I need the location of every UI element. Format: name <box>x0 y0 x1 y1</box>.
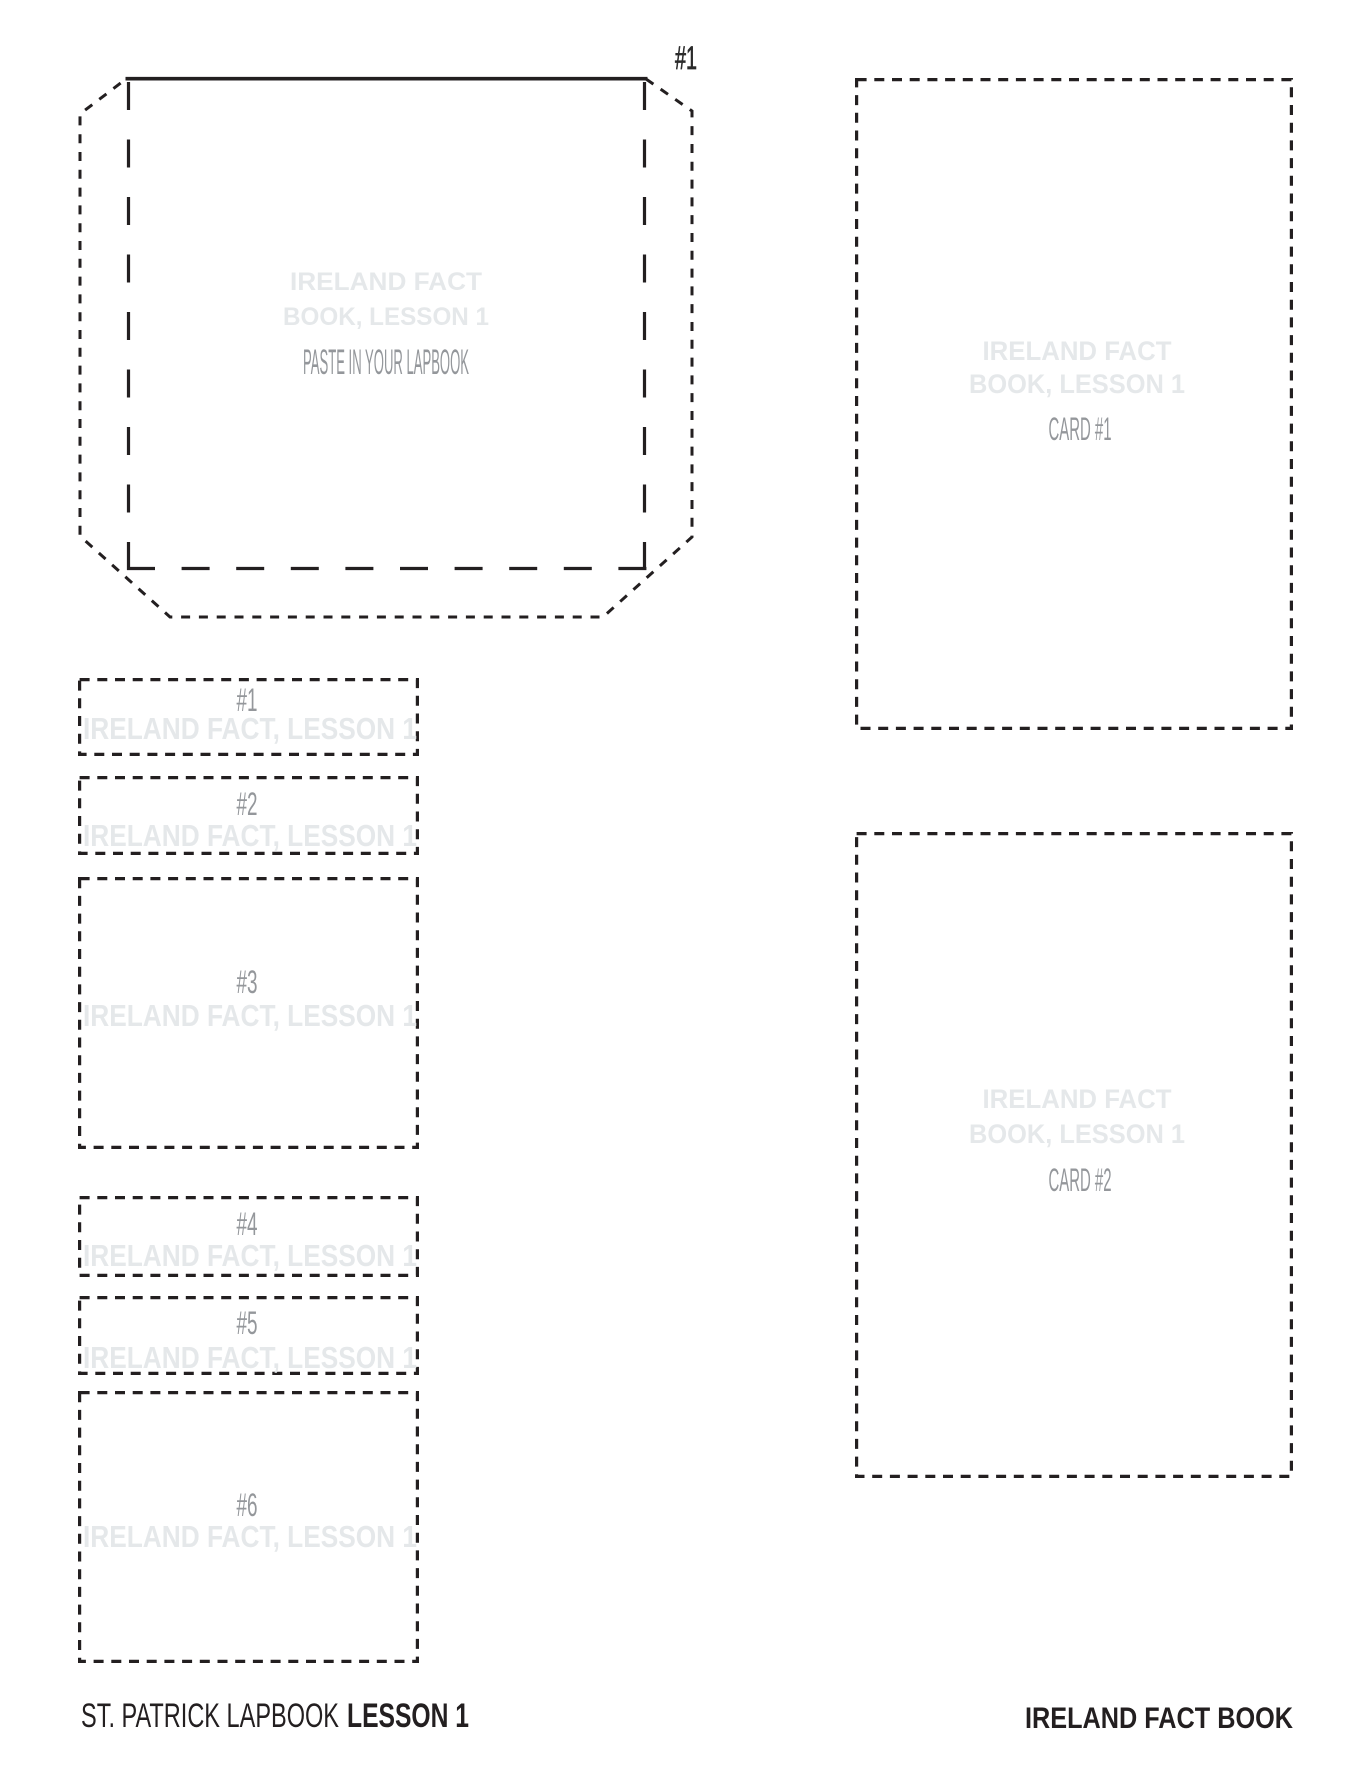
svg-text:#1: #1 <box>675 40 697 76</box>
svg-text:IRELAND FACT, LESSON 1: IRELAND FACT, LESSON 1 <box>83 1519 417 1554</box>
svg-text:IRELAND FACT BOOK: IRELAND FACT BOOK <box>1025 1702 1293 1735</box>
svg-text:IRELAND FACT: IRELAND FACT <box>983 1084 1172 1114</box>
svg-text:IRELAND FACT: IRELAND FACT <box>983 336 1172 366</box>
svg-text:#2: #2 <box>237 786 258 822</box>
svg-text:IRELAND FACT, LESSON 1: IRELAND FACT, LESSON 1 <box>83 998 417 1033</box>
svg-text:#6: #6 <box>237 1487 258 1523</box>
svg-text:IRELAND FACT, LESSON 1: IRELAND FACT, LESSON 1 <box>83 1238 417 1273</box>
svg-text:BOOK, LESSON 1: BOOK, LESSON 1 <box>969 1119 1185 1149</box>
svg-text:IRELAND FACT: IRELAND FACT <box>290 268 482 296</box>
svg-text:PASTE IN YOUR LAPBOOK: PASTE IN YOUR LAPBOOK <box>303 343 469 382</box>
svg-text:IRELAND FACT, LESSON 1: IRELAND FACT, LESSON 1 <box>83 711 417 746</box>
svg-text:ST. PATRICK LAPBOOK: ST. PATRICK LAPBOOK <box>81 1697 339 1735</box>
svg-text:IRELAND FACT, LESSON 1: IRELAND FACT, LESSON 1 <box>83 1340 417 1375</box>
svg-text:LESSON 1: LESSON 1 <box>347 1697 469 1735</box>
svg-text:BOOK, LESSON 1: BOOK, LESSON 1 <box>283 303 489 331</box>
svg-text:IRELAND FACT, LESSON 1: IRELAND FACT, LESSON 1 <box>83 818 417 853</box>
svg-text:#5: #5 <box>237 1305 258 1341</box>
svg-text:CARD #2: CARD #2 <box>1049 1162 1112 1198</box>
svg-text:#3: #3 <box>237 964 258 1000</box>
svg-text:#4: #4 <box>237 1206 258 1242</box>
svg-text:CARD #1: CARD #1 <box>1049 411 1112 447</box>
svg-text:BOOK, LESSON 1: BOOK, LESSON 1 <box>969 369 1185 399</box>
